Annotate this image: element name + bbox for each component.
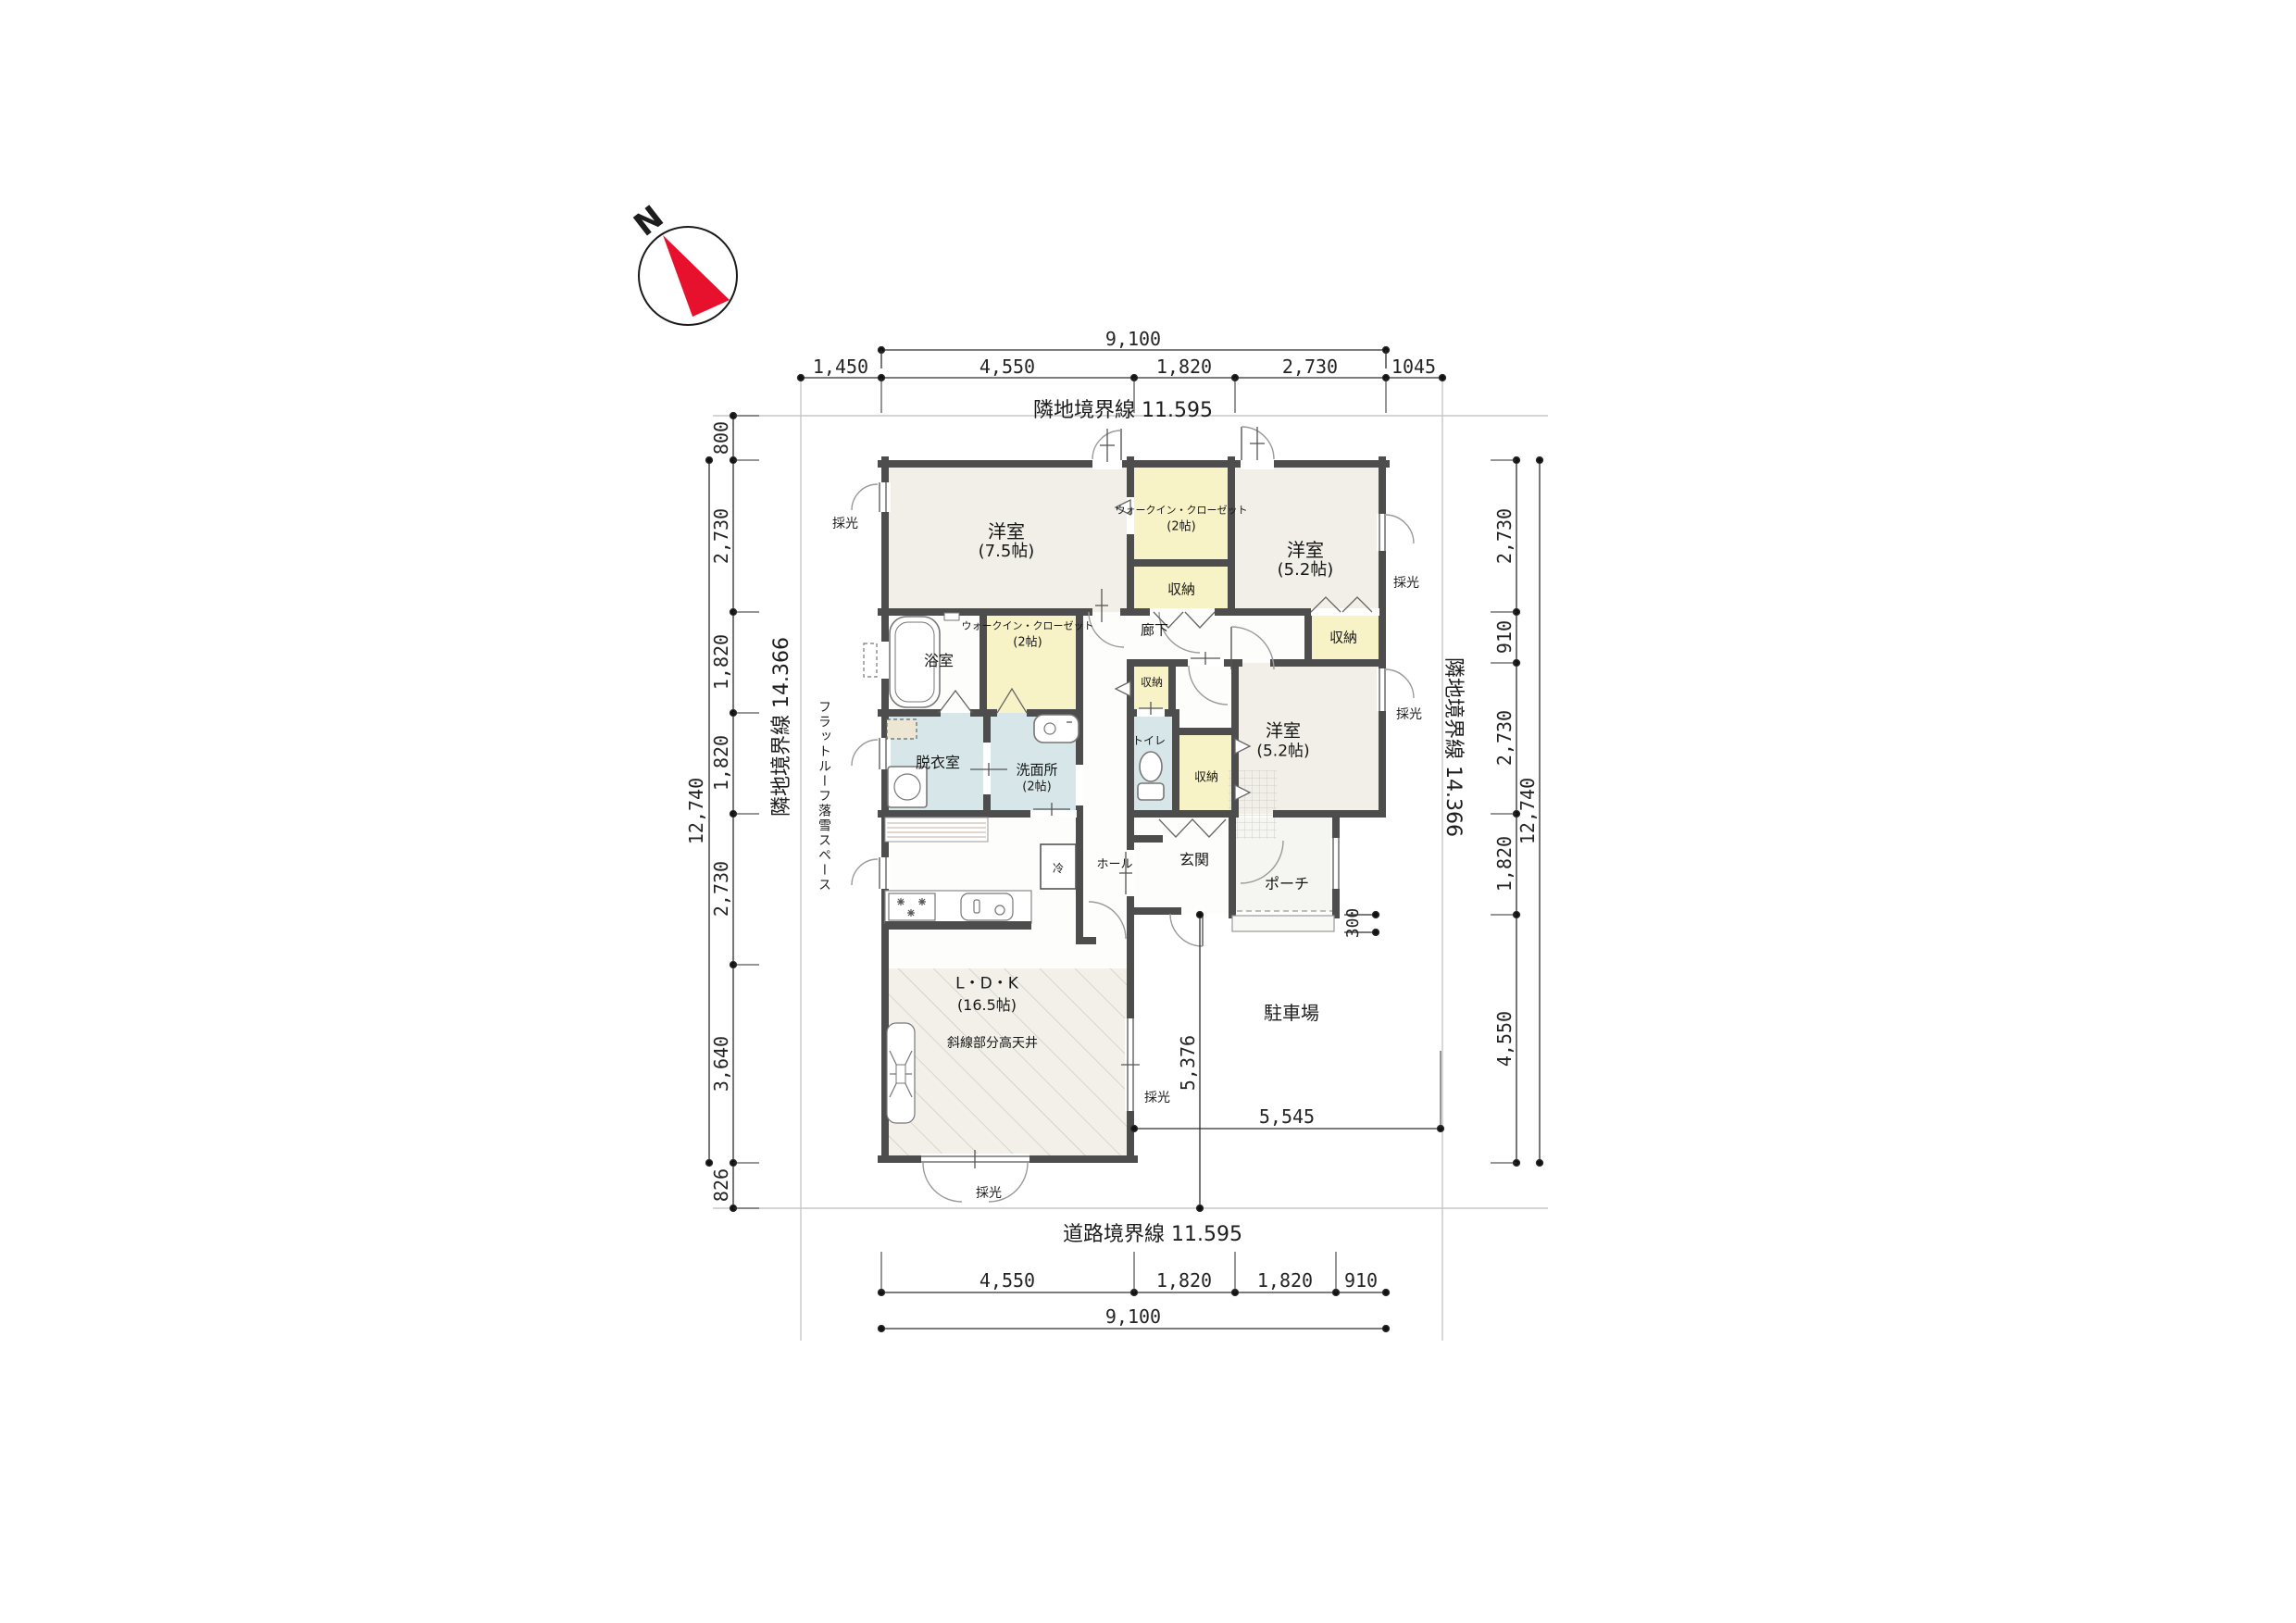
washbasin-icon (1034, 715, 1079, 743)
sink-icon (961, 893, 1013, 920)
counter-shelf-icon (885, 818, 988, 842)
high-ceiling-note: 斜線部分高天井 (947, 1037, 1038, 1050)
porch-step (1232, 911, 1334, 931)
boundary-top-label: 隣地境界線 11.595 (1033, 401, 1213, 421)
floor-plan-drawing (0, 0, 2296, 1623)
stove-icon (889, 893, 935, 920)
dim-left-total: 12,740 (687, 778, 705, 844)
dim-right-seg-0: 2,730 (1495, 508, 1514, 564)
floor-plan-page: N 隣地境界線 11.595 道路境界線 11.595 隣地境界線 14.366… (0, 0, 2296, 1623)
dim-left-seg-4: 2,730 (712, 861, 730, 917)
daylight-label-east-upper: 採光 (1393, 577, 1419, 590)
dim-left-seg-5: 3,640 (712, 1036, 730, 1092)
dim-bottom-total: 9,100 (1105, 1307, 1161, 1326)
dim-top-seg-0: 1,450 (813, 357, 868, 376)
dim-site-depth: 5,376 (1179, 1035, 1197, 1091)
room-label-wic-center: ウォークイン・クローゼット (962, 621, 1094, 631)
parking-label: 駐車場 (1264, 1004, 1319, 1022)
room-size-bedroom-52-e: (5.2帖) (1256, 744, 1309, 760)
dim-right-total: 12,740 (1518, 778, 1537, 844)
dim-left-seg-6: 826 (712, 1168, 730, 1202)
room-label-corridor: 廊下 (1141, 624, 1168, 638)
room-size-bedroom-52-ne: (5.2帖) (1278, 562, 1334, 579)
room-label-wic-north: ウォークイン・クローゼット (1116, 506, 1248, 516)
toilet-icon (1138, 752, 1164, 800)
daylight-label-south: 採光 (976, 1187, 1002, 1200)
boundary-left-label: 隣地境界線 14.366 (772, 637, 792, 817)
daylight-label-west: 採光 (832, 518, 858, 531)
room-label-washroom: 洗面所 (1016, 764, 1057, 778)
dim-left-seg-2: 1,820 (712, 634, 730, 690)
north-compass-icon (639, 227, 737, 325)
dim-bottom-seg-0: 4,550 (980, 1271, 1035, 1290)
dim-top-seg-3: 2,730 (1282, 357, 1338, 376)
room-bedroom-52-ne (1231, 464, 1382, 612)
room-label-porch: ポーチ (1265, 877, 1309, 892)
room-label-dressing: 脱衣室 (916, 755, 960, 770)
boundary-right-label: 隣地境界線 14.366 (1442, 657, 1463, 837)
dim-porch-step: 300 (1345, 908, 1362, 939)
dim-bottom-seg-3: 910 (1344, 1271, 1378, 1290)
dim-left-seg-1: 2,730 (712, 508, 730, 564)
room-size-ldk: (16.5帖) (957, 998, 1017, 1013)
dim-top-seg-4: 1045 (1391, 357, 1436, 376)
room-size-wic-center: (2帖) (1013, 637, 1042, 649)
room-label-ldk: L・D・K (955, 977, 1018, 993)
washing-machine-icon (888, 767, 927, 807)
dim-left-seg-0: 800 (712, 421, 730, 455)
room-label-hall: ホール (1096, 859, 1132, 871)
room-label-closet-ne: 収納 (1329, 631, 1357, 645)
dim-right-seg-4: 4,550 (1495, 1011, 1514, 1067)
boundary-bottom-label: 道路境界線 11.595 (1063, 1225, 1242, 1245)
dim-right-seg-2: 2,730 (1495, 710, 1514, 766)
room-label-bedroom-75: 洋室 (988, 522, 1025, 541)
dim-site-width: 5,545 (1259, 1107, 1315, 1126)
room-label-toilet: トイレ (1132, 735, 1166, 746)
flat-roof-note: フラットルーフ落雪スペース (817, 700, 830, 893)
ceiling-fan-icon (887, 1023, 915, 1123)
dim-right-seg-3: 1,820 (1495, 836, 1514, 892)
dim-bottom-seg-1: 1,820 (1156, 1271, 1212, 1290)
dim-left-seg-3: 1,820 (712, 735, 730, 791)
room-label-bedroom-52-ne: 洋室 (1287, 541, 1324, 559)
room-size-bedroom-75: (7.5帖) (979, 543, 1035, 560)
daylight-label-ldk-east: 採光 (1144, 1092, 1170, 1105)
refrigerator-label: 冷 (1053, 863, 1064, 874)
room-label-bedroom-52-e: 洋室 (1266, 723, 1301, 741)
dim-right-seg-1: 910 (1495, 620, 1514, 654)
room-size-washroom: (2帖) (1022, 781, 1051, 793)
room-label-entrance: 玄関 (1179, 853, 1209, 868)
room-label-bathroom: 浴室 (924, 654, 954, 668)
room-size-wic-north: (2帖) (1167, 521, 1195, 533)
laundry-pan-icon (887, 719, 917, 739)
room-label-closet-center: 収納 (1194, 772, 1218, 784)
room-label-closet-small: 収納 (1141, 677, 1163, 688)
dim-top-total: 9,100 (1105, 330, 1161, 348)
daylight-label-east-lower: 採光 (1396, 708, 1422, 721)
dim-top-seg-1: 4,550 (980, 357, 1035, 376)
dim-bottom-seg-2: 1,820 (1257, 1271, 1313, 1290)
dim-top-seg-2: 1,820 (1156, 357, 1212, 376)
room-label-closet-north: 収納 (1167, 583, 1195, 597)
